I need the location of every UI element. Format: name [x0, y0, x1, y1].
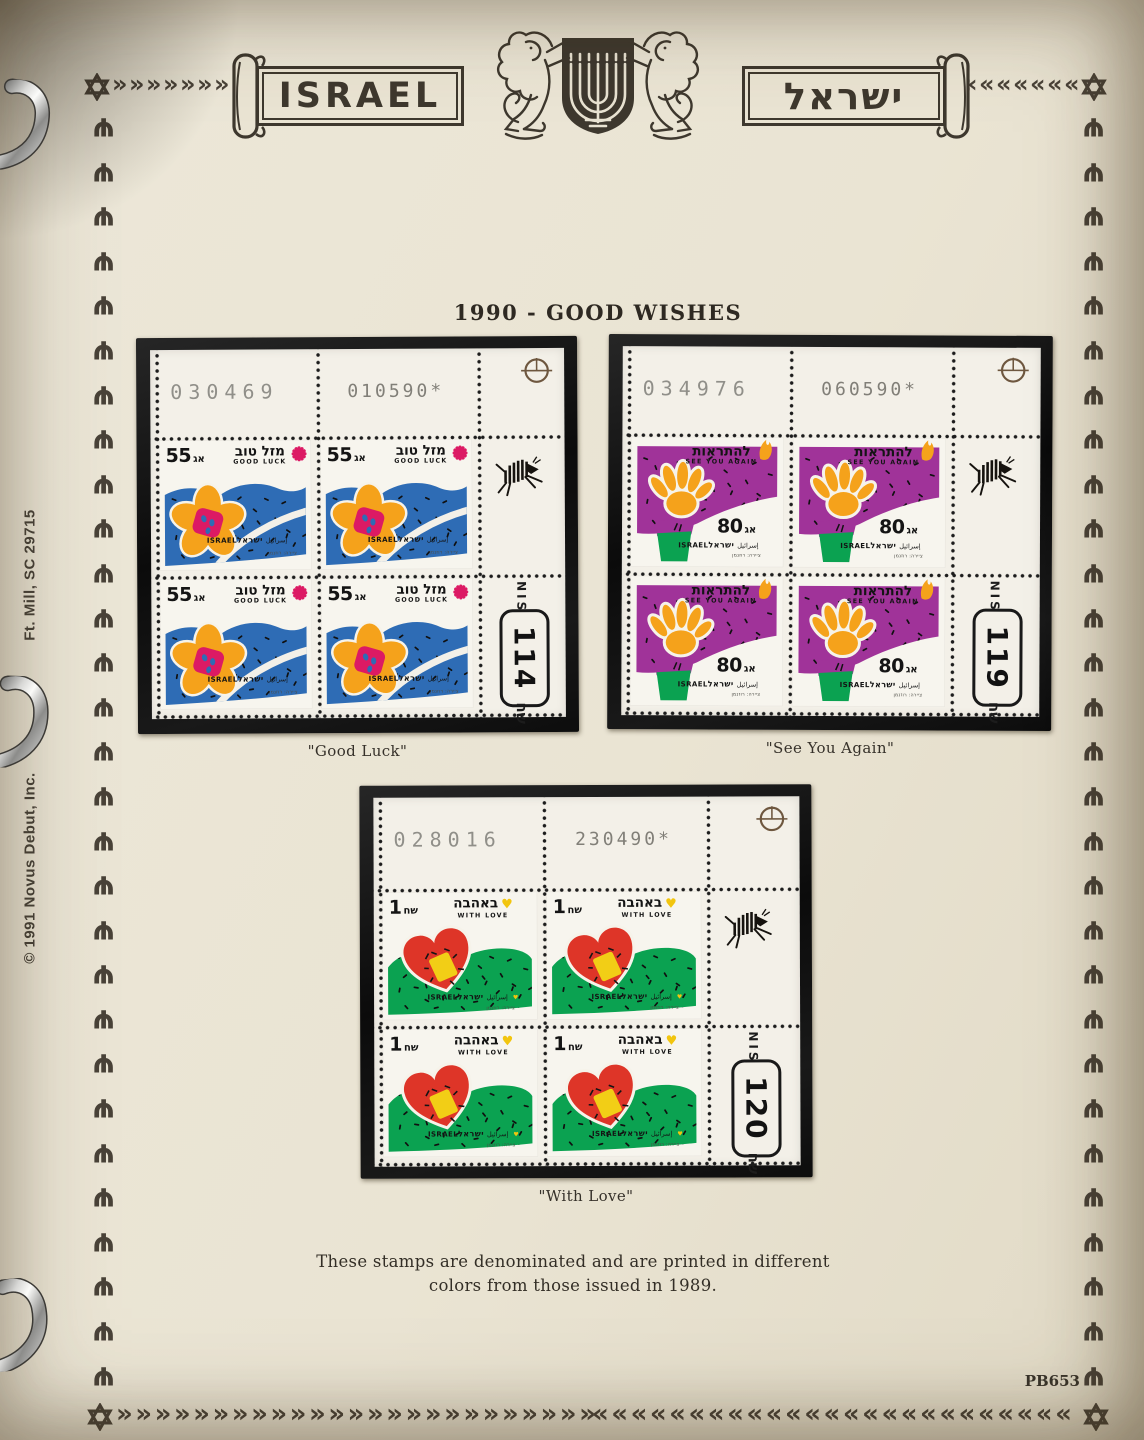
registration-mark — [520, 356, 553, 393]
heart-icon: ♥ — [665, 897, 677, 912]
country-name: ISRAELإسرائيلישראל♥ — [413, 992, 533, 1001]
denomination: שח1 — [389, 1034, 420, 1056]
stamp-with-love: שח1 באהבה♥ WITH LOVE ISRAELإسرائيلישראל♥… — [547, 1029, 701, 1157]
greeting-hebrew: מזל טוב — [396, 443, 446, 459]
tulip-ornament-icon: Ψ — [93, 1130, 114, 1175]
star-of-david-icon — [83, 73, 111, 105]
greeting-hebrew: להתראות — [692, 443, 751, 459]
greeting: באהבה♥ WITH LOVE — [454, 1033, 514, 1056]
tulip-ornament-icon: Ψ — [1083, 1040, 1104, 1085]
sheet-corner: 034976060590* NIS119שח 80אג להתראות SEE … — [621, 346, 1041, 717]
chevron-border: ««««««««««««««««««««««««« — [592, 1400, 1074, 1428]
designer-credit: ציירה: רוזנמן — [651, 1143, 680, 1148]
heart-icon: ♥ — [513, 994, 519, 1001]
tulip-ornament-icon: Ψ — [1083, 416, 1104, 461]
binder-ring — [0, 1275, 56, 1376]
tulip-ornament-icon: Ψ — [93, 862, 114, 907]
country-latin: ISRAEL — [428, 1130, 458, 1138]
tulip-ornament-icon: Ψ — [1083, 996, 1104, 1041]
country-arabic: إسرائيل — [899, 681, 920, 689]
greeting-english: WITH LOVE — [454, 1049, 514, 1056]
denomination-unit: שח — [403, 906, 417, 917]
country-arabic: إسرائيل — [266, 536, 287, 544]
denomination-unit: אג — [355, 592, 367, 603]
tulip-ornament-icon: Ψ — [1083, 1353, 1104, 1398]
chevron-border: »»»»»»»»»»»»»»»»»»»»»»»»» — [116, 1400, 598, 1428]
designer-credit: ציירה: רוזנמן — [430, 689, 459, 694]
country-name: ISRAELإسرائيلישראל♥ — [414, 1129, 534, 1138]
tulip-ornament-icon: Ψ — [93, 193, 114, 238]
heart-icon: ♥ — [502, 1034, 514, 1049]
registration-mark-icon — [997, 356, 1030, 389]
tulip-ornament-icon: Ψ — [1083, 639, 1104, 684]
tulip-ornament-icon: Ψ — [1083, 1263, 1104, 1308]
greeting-english: GOOD LUCK — [395, 597, 448, 604]
greeting-hebrew: להתראות — [692, 582, 751, 598]
deer-logo-icon — [964, 450, 1018, 496]
denomination-unit: אג — [354, 453, 366, 464]
footnote-line-1: These stamps are denominated and are pri… — [98, 1252, 1048, 1271]
tulip-border: ΨΨΨΨΨΨΨΨΨΨΨΨΨΨΨΨΨΨΨΨΨΨΨΨΨΨΨΨΨ — [1080, 104, 1108, 1397]
denomination: 55אג — [327, 444, 368, 466]
country-hebrew: ישראל — [870, 541, 896, 550]
tulip-ornament-icon: Ψ — [1083, 1308, 1104, 1353]
denomination-unit: אג — [744, 525, 756, 536]
hebrew-banner-label: ישראל — [784, 75, 905, 118]
page-title: 1990 - GOOD WISHES — [98, 300, 1098, 325]
tulip-ornament-icon: Ψ — [93, 416, 114, 461]
greeting-english: SEE YOU AGAIN — [848, 459, 920, 466]
israel-banner: ISRAEL — [256, 66, 464, 126]
greeting: מזל טוב GOOD LUCK — [394, 444, 448, 465]
country-arabic: إسرائيل — [651, 1130, 672, 1138]
country-name: ISRAELإسرائيلישראל — [660, 679, 778, 689]
country-latin: ISRAEL — [678, 541, 708, 549]
greeting: באהבה♥ WITH LOVE — [618, 1033, 678, 1056]
country-latin: ISRAEL — [369, 675, 399, 683]
stamp-good-luck: 55אג מזל טוב GOOD LUCK ISRAELإسرائيلישרא… — [160, 579, 312, 709]
country-latin: ISRAEL — [592, 1130, 622, 1138]
tulip-ornament-icon: Ψ — [93, 372, 114, 417]
chevron-border: ««««««« — [962, 70, 1081, 98]
tulip-ornament-icon: Ψ — [93, 1085, 114, 1130]
country-name: ISRAELإسرائيلישראל♥ — [577, 992, 697, 1001]
tulip-ornament-icon: Ψ — [1083, 238, 1104, 283]
country-hebrew: ישראל — [622, 992, 648, 1001]
deer-logo-icon — [491, 450, 545, 496]
greeting: באהבה♥ WITH LOVE — [453, 896, 513, 919]
sheet-corner: 030469010590* NIS114שח 55אג מזל טוב GOOD… — [150, 348, 566, 719]
stamp-with-love: שח1 באהבה♥ WITH LOVE ISRAELإسرائيلישראל♥… — [383, 1029, 537, 1157]
tulip-ornament-icon: Ψ — [93, 461, 114, 506]
stamp-good-luck: 55אג מזל טוב GOOD LUCK ISRAELإسرائيلישרא… — [321, 578, 473, 708]
denomination-unit: שח — [568, 1042, 582, 1053]
tulip-ornament-icon: Ψ — [1083, 907, 1104, 952]
stamp-block-with-love: 028016230490* NIS120שח שח1 באהבה♥ WITH L… — [359, 784, 812, 1179]
tulip-ornament-icon: Ψ — [93, 907, 114, 952]
album-page: »»»»»»»«««««««»»»»»»»»»»»»»»»»»»»»»»»»»«… — [0, 0, 1144, 1440]
country-hebrew: ישראל — [237, 535, 263, 544]
tulip-ornament-icon: Ψ — [1083, 104, 1104, 149]
tulip-ornament-icon: Ψ — [1083, 1130, 1104, 1175]
address-note: Ft. Mill, SC 29715 — [22, 509, 39, 641]
tulip-ornament-icon: Ψ — [1083, 372, 1104, 417]
denomination: שח1 — [553, 896, 584, 918]
greeting: להתראות SEE YOU AGAIN — [686, 444, 758, 465]
greeting: להתראות SEE YOU AGAIN — [685, 583, 757, 604]
hebrew-banner: ישראל — [742, 66, 946, 126]
greeting-hebrew: מזל טוב — [235, 443, 285, 459]
country-hebrew: ישראל — [238, 674, 264, 683]
plate-serial-number: 034976 — [643, 376, 751, 400]
denomination-number: 1 — [389, 897, 402, 919]
tulip-ornament-icon: Ψ — [1083, 149, 1104, 194]
country-latin: ISRAEL — [207, 537, 237, 545]
country-hebrew: ישראל — [870, 680, 896, 689]
greeting-english: GOOD LUCK — [233, 458, 286, 465]
denomination: 55אג — [166, 445, 207, 467]
designer-credit: ציירה: רוזנמן — [486, 1006, 515, 1011]
tulip-ornament-icon: Ψ — [1083, 1174, 1104, 1219]
tulip-ornament-icon: Ψ — [93, 1040, 114, 1085]
greeting-hebrew: מזל טוב — [396, 582, 446, 598]
deer-logo — [720, 902, 774, 952]
country-arabic: إسرائيل — [427, 536, 448, 544]
registration-mark — [997, 356, 1030, 393]
footnote-line-2: colors from those issued in 1989. — [98, 1276, 1048, 1295]
designer-credit: ציירה: רוזנמן — [650, 1006, 679, 1011]
tulip-border: ΨΨΨΨΨΨΨΨΨΨΨΨΨΨΨΨΨΨΨΨΨΨΨΨΨΨΨΨΨ — [90, 104, 118, 1397]
country-name: ISRAELإسرائيلישראל — [661, 540, 779, 550]
country-hebrew: ישראל — [398, 535, 424, 544]
country-hebrew: ישראל — [708, 540, 734, 549]
denomination-unit: שח — [567, 905, 581, 916]
denomination-unit: שח — [404, 1043, 418, 1054]
chevron-border: »»»»»»» — [112, 70, 231, 98]
tulip-ornament-icon: Ψ — [93, 639, 114, 684]
printing-date-code: 230490* — [547, 829, 699, 851]
country-name: ISRAELإسرائيلישראל — [822, 680, 940, 690]
designer-credit: ציירה: רוזנמן — [429, 550, 458, 555]
greeting: להתראות SEE YOU AGAIN — [848, 445, 920, 466]
denomination-unit: אג — [906, 525, 918, 536]
greeting: מזל טוב GOOD LUCK — [233, 444, 287, 465]
plate-number: 120 — [731, 1059, 781, 1157]
scroll-end-icon — [936, 50, 976, 146]
country-arabic: إسرائيل — [486, 993, 507, 1001]
country-hebrew: ישראל — [458, 992, 484, 1001]
country-arabic: إسرائيل — [737, 542, 758, 550]
denomination-number: 1 — [553, 1033, 566, 1055]
country-arabic: إسرائيل — [650, 993, 671, 1001]
deer-logo — [491, 450, 545, 500]
tulip-ornament-icon: Ψ — [93, 595, 114, 640]
tulip-ornament-icon: Ψ — [93, 684, 114, 729]
block-caption: "With Love" — [360, 1187, 812, 1205]
tulip-ornament-icon: Ψ — [93, 818, 114, 863]
deer-logo — [964, 450, 1018, 500]
greeting-english: SEE YOU AGAIN — [686, 458, 758, 465]
greeting-english: WITH LOVE — [453, 912, 513, 919]
registration-mark — [755, 804, 788, 841]
country-latin: ISRAEL — [427, 993, 457, 1001]
denomination: שח1 — [553, 1033, 584, 1055]
denomination: 55אג — [327, 583, 368, 605]
denomination: 80אג — [716, 655, 757, 677]
printing-date-code: 060590* — [795, 379, 945, 401]
denomination-number: 1 — [389, 1034, 402, 1056]
country-name: ISRAELإسرائيلישראל — [823, 541, 941, 551]
tulip-ornament-icon: Ψ — [1083, 193, 1104, 238]
country-latin: ISRAEL — [678, 680, 708, 688]
stamp-with-love: שח1 באהבה♥ WITH LOVE ISRAELإسرائيلישראל♥… — [547, 892, 701, 1020]
designer-credit: ציירה: רוזנמן — [894, 554, 923, 559]
heart-icon: ♥ — [677, 994, 683, 1001]
binder-ring — [0, 675, 54, 773]
denomination-number: 55 — [166, 584, 192, 606]
country-arabic: إسرائيل — [267, 675, 288, 683]
denomination-number: 80 — [717, 516, 743, 538]
denomination-unit: אג — [194, 593, 206, 604]
star-of-david-icon — [1082, 1403, 1110, 1435]
country-hebrew: ישראל — [399, 674, 425, 683]
stamp-see-you-again: 80אג להתראות SEE YOU AGAIN ISRAELإسرائيل… — [630, 576, 783, 706]
sheqel-label: שח — [512, 696, 532, 730]
country-name: ISRAELإسرائيلישראל — [351, 534, 468, 544]
perforation-column — [949, 348, 957, 717]
denomination: 80אג — [717, 516, 758, 538]
plate-serial-number: 028016 — [393, 827, 501, 851]
lions-menorah-emblem-icon — [448, 2, 748, 156]
tulip-ornament-icon: Ψ — [1083, 951, 1104, 996]
registration-mark-icon — [755, 804, 788, 837]
designer-credit: ציירה: רוזנמן — [732, 693, 761, 698]
designer-credit: ציירה: רוזנמן — [487, 1143, 516, 1148]
greeting-hebrew: להתראות — [854, 583, 913, 599]
block-caption: "See You Again" — [608, 739, 1052, 757]
country-latin: ISRAEL — [368, 536, 398, 544]
printing-date-code: 010590* — [321, 380, 470, 402]
greeting-english: WITH LOVE — [617, 912, 677, 919]
greeting-hebrew: באהבה — [618, 1032, 663, 1048]
denomination-unit: אג — [744, 664, 756, 675]
tulip-ornament-icon: Ψ — [1083, 327, 1104, 372]
tulip-ornament-icon: Ψ — [93, 951, 114, 996]
denomination-unit: אג — [193, 454, 205, 465]
block-caption: "Good Luck" — [137, 742, 578, 760]
sheet-corner: 028016230490* NIS120שח שח1 באהבה♥ WITH L… — [373, 796, 800, 1166]
designer-credit: ציירה: רוזנמן — [894, 693, 923, 698]
heart-icon: ♥ — [501, 897, 513, 912]
country-arabic: إسرائيل — [899, 542, 920, 550]
country-hebrew: ישראל — [622, 1129, 648, 1138]
country-arabic: إسرائيل — [737, 681, 758, 689]
greeting-hebrew: באהבה — [453, 895, 498, 911]
heart-icon: ♥ — [666, 1034, 678, 1049]
tulip-ornament-icon: Ψ — [1083, 684, 1104, 729]
plate-number: 119 — [972, 609, 1022, 707]
tulip-ornament-icon: Ψ — [93, 728, 114, 773]
country-latin: ISRAEL — [591, 993, 621, 1001]
tulip-ornament-icon: Ψ — [93, 238, 114, 283]
designer-credit: ציירה: רוזנמן — [732, 554, 761, 559]
stamp-good-luck: 55אג מזל טוב GOOD LUCK ISRAELإسرائيلישרא… — [160, 440, 312, 570]
country-name: ISRAELإسرائيلישראל♥ — [578, 1129, 698, 1138]
denomination-unit: אג — [906, 664, 918, 675]
heart-icon: ♥ — [677, 1131, 683, 1138]
stamp-block-see-you-again: 034976060590* NIS119שח 80אג להתראות SEE … — [607, 334, 1053, 731]
plate-number: 114 — [499, 609, 550, 707]
heart-icon: ♥ — [513, 1131, 519, 1138]
country-arabic: إسرائيل — [487, 1130, 508, 1138]
tulip-ornament-icon: Ψ — [1083, 550, 1104, 595]
copyright-note: © 1991 Novus Debut, Inc. — [22, 772, 39, 963]
country-hebrew: ישראל — [458, 1129, 484, 1138]
greeting-english: GOOD LUCK — [234, 597, 287, 604]
star-of-david-icon — [1080, 73, 1108, 105]
denomination-number: 1 — [553, 896, 566, 918]
greeting-hebrew: להתראות — [854, 444, 913, 460]
greeting: להתראות SEE YOU AGAIN — [847, 584, 919, 605]
denomination-number: 80 — [879, 516, 905, 538]
stamp-block-good-luck: 030469010590* NIS114שח 55אג מזל טוב GOOD… — [136, 336, 579, 734]
denomination-number: 55 — [327, 444, 353, 466]
tulip-ornament-icon: Ψ — [93, 505, 114, 550]
greeting-english: GOOD LUCK — [394, 458, 447, 465]
tulip-ornament-icon: Ψ — [93, 1174, 114, 1219]
star-of-david-icon — [86, 1403, 114, 1435]
denomination: 80אג — [879, 516, 920, 538]
israel-banner-label: ISRAEL — [279, 76, 441, 116]
tulip-ornament-icon: Ψ — [93, 773, 114, 818]
country-name: ISRAELإسرائيلישראל — [191, 674, 308, 684]
greeting-english: WITH LOVE — [618, 1049, 678, 1056]
country-latin: ISRAEL — [840, 681, 870, 689]
denomination-number: 80 — [716, 655, 742, 677]
tulip-ornament-icon: Ψ — [1083, 773, 1104, 818]
denomination: 55אג — [166, 584, 207, 606]
denomination-number: 80 — [878, 655, 904, 677]
perforation-column — [705, 797, 712, 1166]
country-latin: ISRAEL — [208, 676, 238, 684]
tulip-ornament-icon: Ψ — [1083, 1219, 1104, 1264]
tulip-ornament-icon: Ψ — [93, 104, 114, 149]
country-hebrew: ישראל — [708, 679, 734, 688]
denomination: שח1 — [389, 897, 420, 919]
tulip-ornament-icon: Ψ — [1083, 728, 1104, 773]
greeting-english: SEE YOU AGAIN — [685, 597, 757, 604]
greeting: באהבה♥ WITH LOVE — [617, 896, 677, 919]
registration-mark-icon — [520, 356, 553, 389]
tulip-ornament-icon: Ψ — [1083, 461, 1104, 506]
greeting-english: SEE YOU AGAIN — [847, 598, 919, 605]
denomination-number: 55 — [166, 445, 192, 467]
denomination: 80אג — [878, 655, 919, 677]
perforation-column — [476, 348, 484, 717]
country-arabic: إسرائيل — [428, 675, 449, 683]
designer-credit: ציירה: רוזנמן — [268, 551, 297, 556]
tulip-ornament-icon: Ψ — [93, 1308, 114, 1353]
greeting-hebrew: מזל טוב — [235, 582, 285, 598]
country-latin: ISRAEL — [840, 542, 870, 550]
tulip-ornament-icon: Ψ — [1083, 1085, 1104, 1130]
designer-credit: ציירה: רוזנמן — [269, 690, 298, 695]
tulip-ornament-icon: Ψ — [93, 1353, 114, 1398]
tulip-ornament-icon: Ψ — [93, 149, 114, 194]
sheqel-label: שח — [984, 696, 1004, 730]
stamp-see-you-again: 80אג להתראות SEE YOU AGAIN ISRAELإسرائيل… — [793, 438, 946, 568]
deer-logo-icon — [720, 902, 774, 948]
stamp-see-you-again: 80אג להתראות SEE YOU AGAIN ISRAELإسرائيل… — [631, 437, 784, 567]
country-name: ISRAELإسرائيلישראל — [190, 535, 307, 545]
denomination-number: 55 — [327, 583, 353, 605]
binder-ring — [0, 76, 58, 180]
stamp-see-you-again: 80אג להתראות SEE YOU AGAIN ISRAELإسرائيل… — [792, 577, 945, 707]
stamp-good-luck: 55אג מזל טוב GOOD LUCK ISRAELإسرائيلישרא… — [321, 439, 473, 569]
tulip-ornament-icon: Ψ — [1083, 818, 1104, 863]
tulip-ornament-icon: Ψ — [93, 327, 114, 372]
tulip-ornament-icon: Ψ — [1083, 505, 1104, 550]
greeting-hebrew: באהבה — [454, 1032, 499, 1048]
greeting-hebrew: באהבה — [617, 895, 662, 911]
plate-serial-number: 030469 — [170, 379, 278, 404]
tulip-ornament-icon: Ψ — [1083, 595, 1104, 640]
tulip-ornament-icon: Ψ — [1083, 862, 1104, 907]
stamp-with-love: שח1 באהבה♥ WITH LOVE ISRAELإسرائيلישראל♥… — [383, 892, 537, 1020]
greeting: מזל טוב GOOD LUCK — [395, 583, 449, 604]
greeting: מזל טוב GOOD LUCK — [234, 583, 288, 604]
tulip-ornament-icon: Ψ — [93, 996, 114, 1041]
tulip-ornament-icon: Ψ — [93, 550, 114, 595]
country-name: ISRAELإسرائيلישראל — [352, 673, 469, 683]
page-number: PB653 — [1025, 1372, 1080, 1390]
sheqel-label: שח — [744, 1146, 764, 1180]
